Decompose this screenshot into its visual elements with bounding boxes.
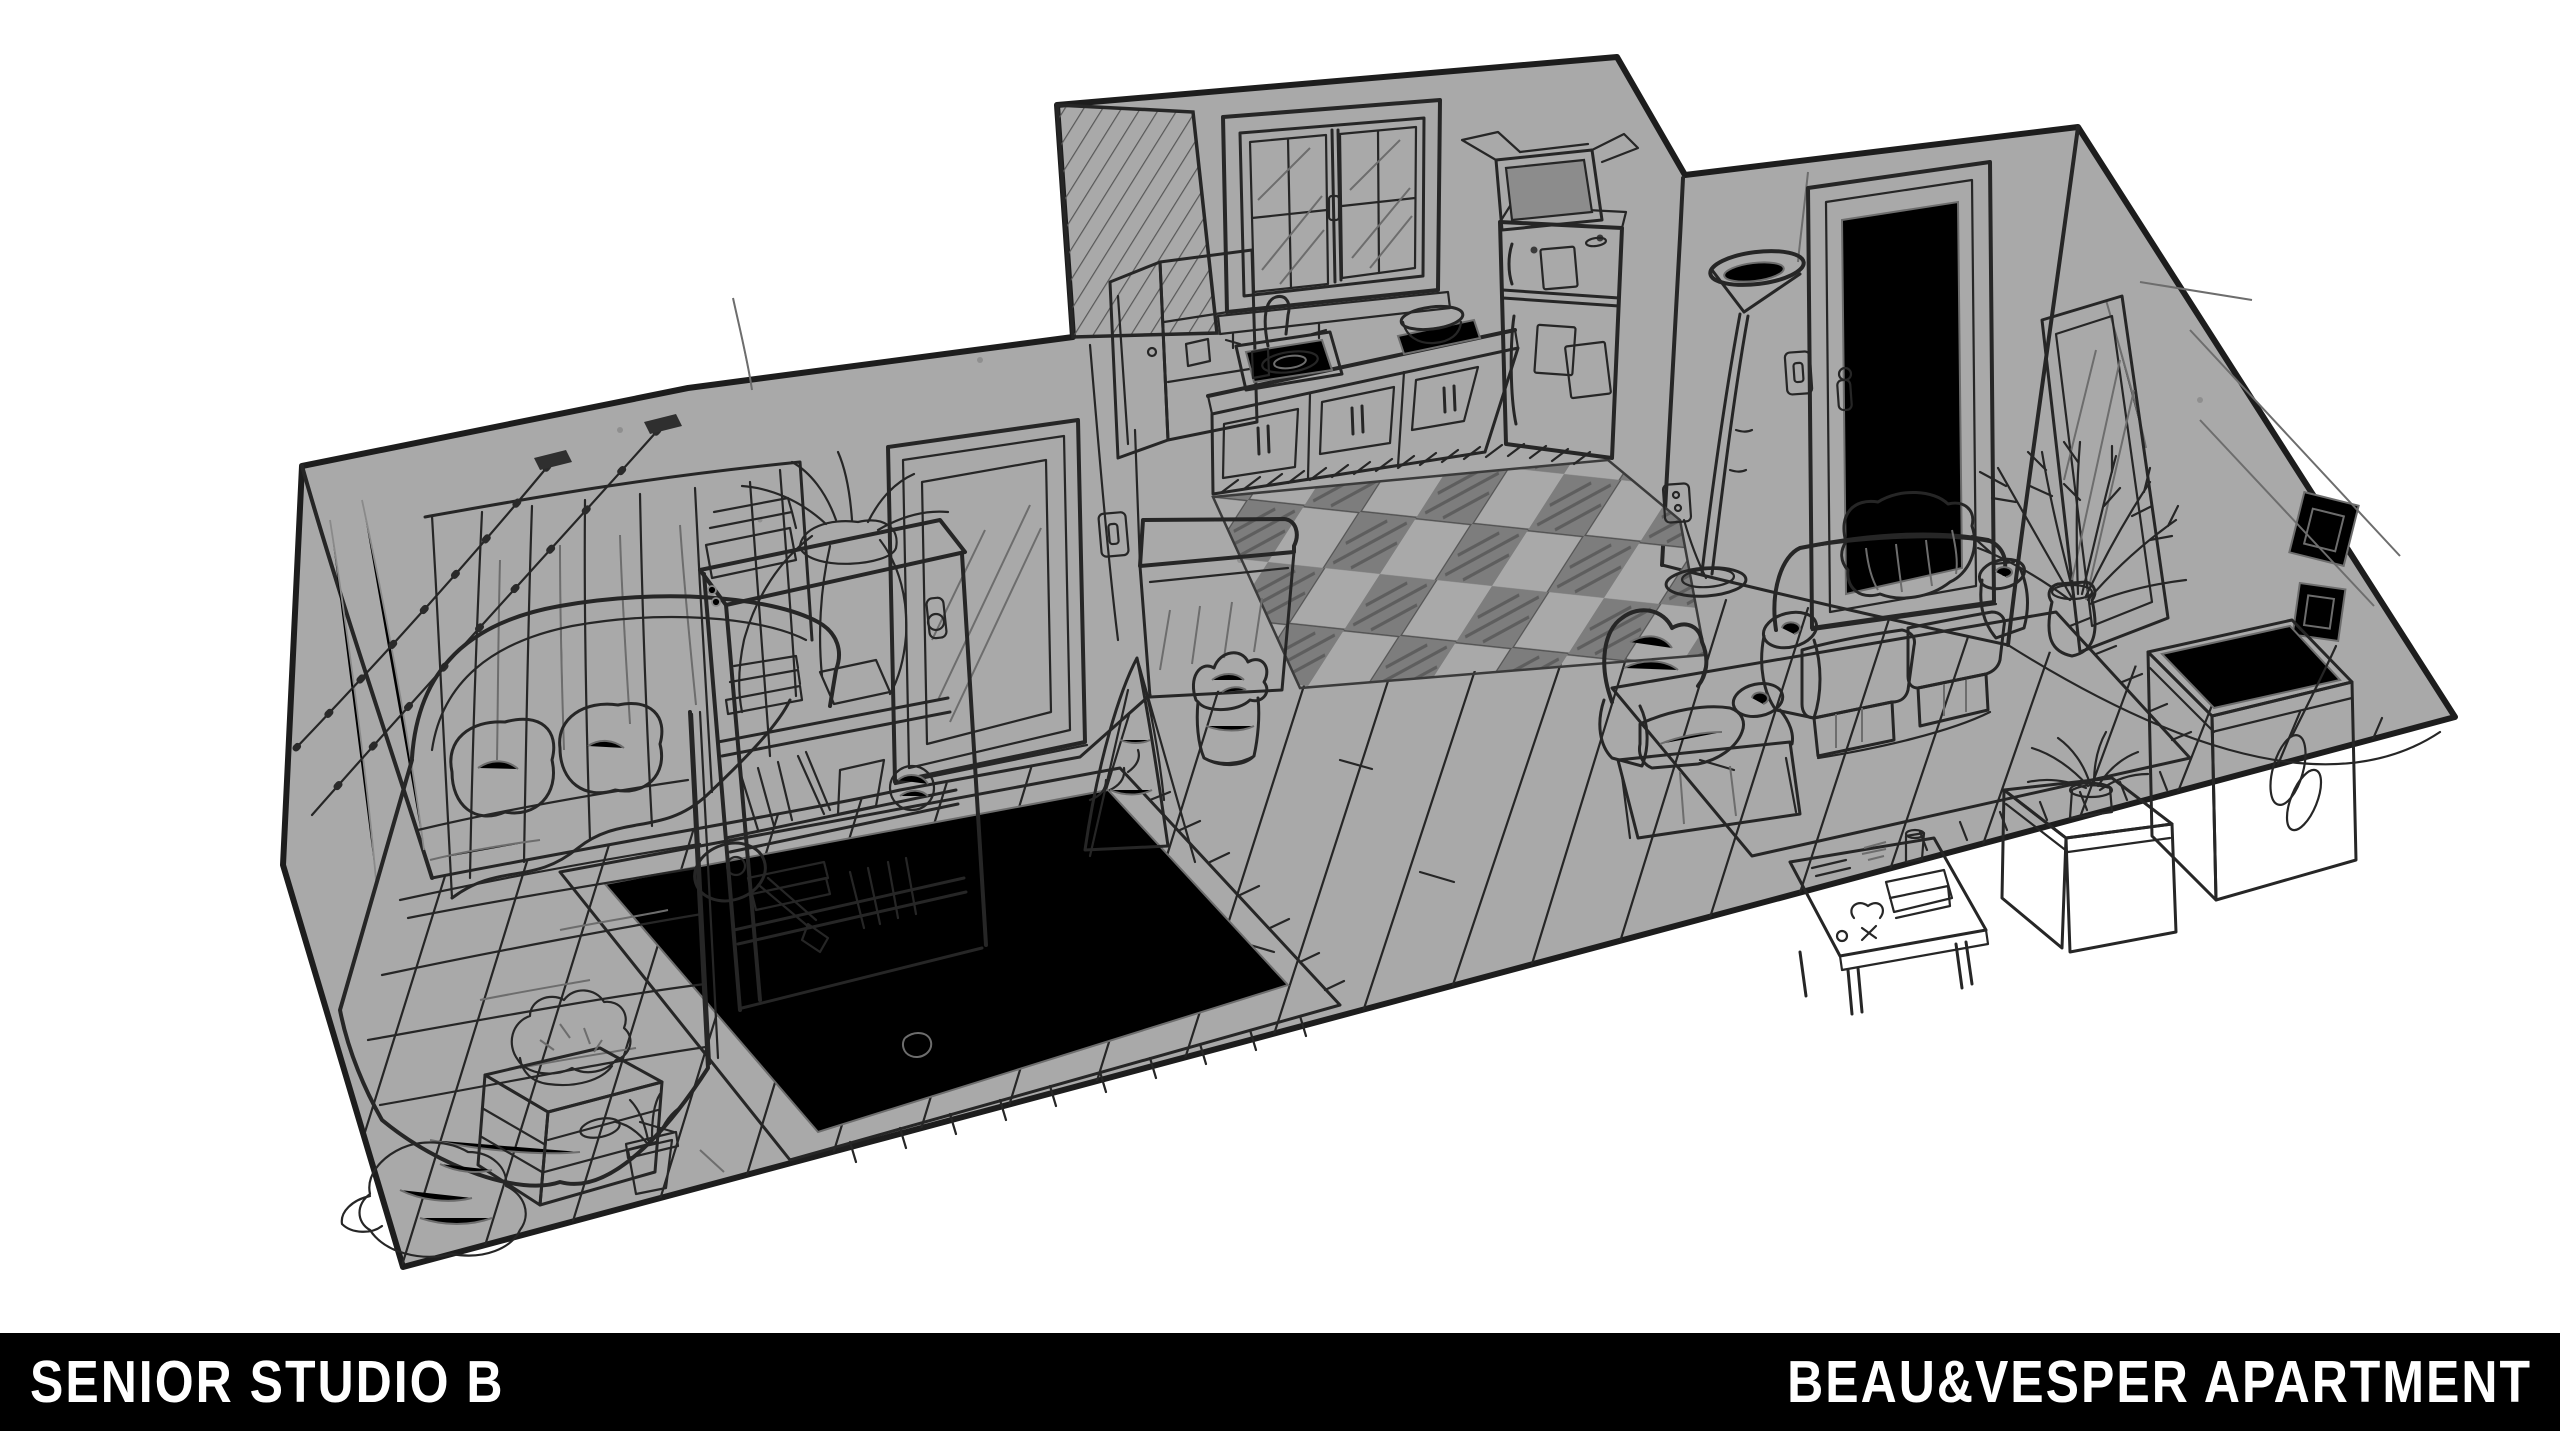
apartment-sketch (0, 0, 2560, 1431)
screenshot-root: SENIOR STUDIO B BEAU&VESPER APARTMENT (0, 0, 2560, 1431)
studio-label: SENIOR STUDIO B (30, 1348, 504, 1416)
title-bar: SENIOR STUDIO B BEAU&VESPER APARTMENT (0, 1333, 2560, 1431)
apartment-label: BEAU&VESPER APARTMENT (1787, 1348, 2532, 1416)
